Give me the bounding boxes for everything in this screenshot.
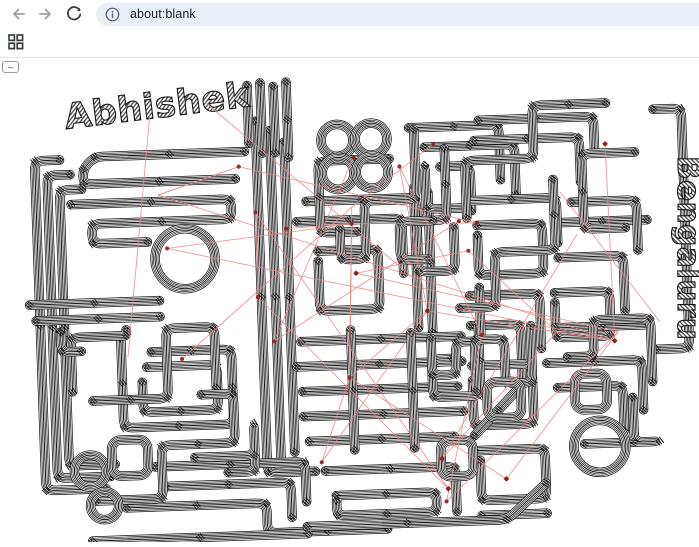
artwork-name-text: Abhishek [62, 76, 252, 138]
back-arrow-icon[interactable] [9, 5, 27, 23]
drawing-canvas: Abhishek Bengaluru [0, 72, 699, 542]
trace-art-layer [18, 72, 699, 542]
omnibox[interactable]: about:blank [96, 3, 699, 26]
toolbar-divider [0, 57, 699, 58]
pcb-doodle-art: Abhishek Bengaluru [0, 72, 699, 542]
grid-2x2-icon[interactable] [8, 34, 24, 50]
url-text: about:blank [130, 7, 196, 21]
forward-arrow-icon[interactable] [37, 5, 55, 23]
page-info-icon[interactable] [104, 6, 121, 23]
refresh-icon[interactable] [65, 5, 83, 23]
artwork-side-text: Bengaluru [670, 156, 699, 340]
browser-toolbar: about:blank [0, 0, 699, 28]
